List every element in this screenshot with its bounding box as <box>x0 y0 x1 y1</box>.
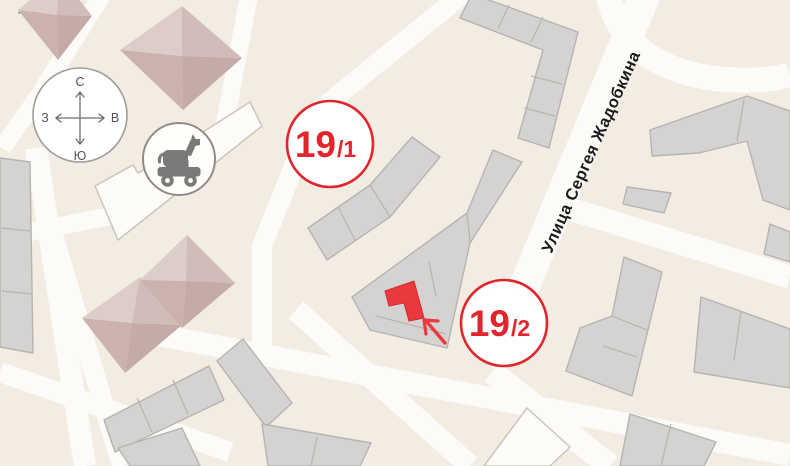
map-canvas: Улица Сергея Жадобкина С Ю З В <box>0 0 790 466</box>
location-map: Улица Сергея Жадобкина С Ю З В <box>0 0 790 466</box>
compass-north-label: С <box>75 75 84 89</box>
marker-19-1-number: 19 <box>295 124 336 165</box>
compass: С Ю З В <box>33 68 127 163</box>
marker-19-1-suffix: /1 <box>337 136 356 162</box>
building-left-strip <box>0 158 33 353</box>
marker-19-1[interactable]: 19 /1 <box>287 101 373 187</box>
marker-19-2-suffix: /2 <box>511 315 530 341</box>
compass-east-label: В <box>111 111 119 125</box>
compass-west-label: З <box>41 111 49 125</box>
marker-19-2[interactable]: 19 /2 <box>461 280 547 366</box>
compass-south-label: Ю <box>74 149 87 163</box>
marker-19-2-number: 19 <box>469 303 510 344</box>
playground-badge <box>143 123 215 195</box>
